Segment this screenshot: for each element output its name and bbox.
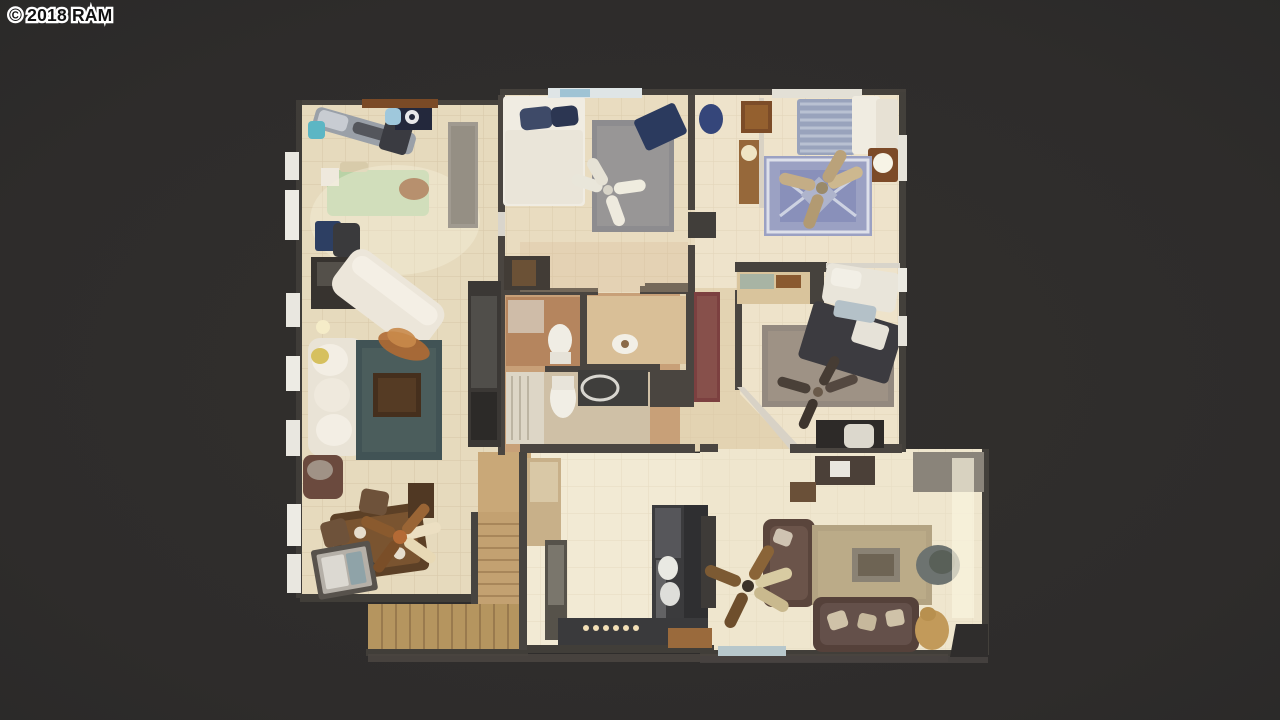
svg-text:© 2018 RAM: © 2018 RAM xyxy=(9,5,112,25)
